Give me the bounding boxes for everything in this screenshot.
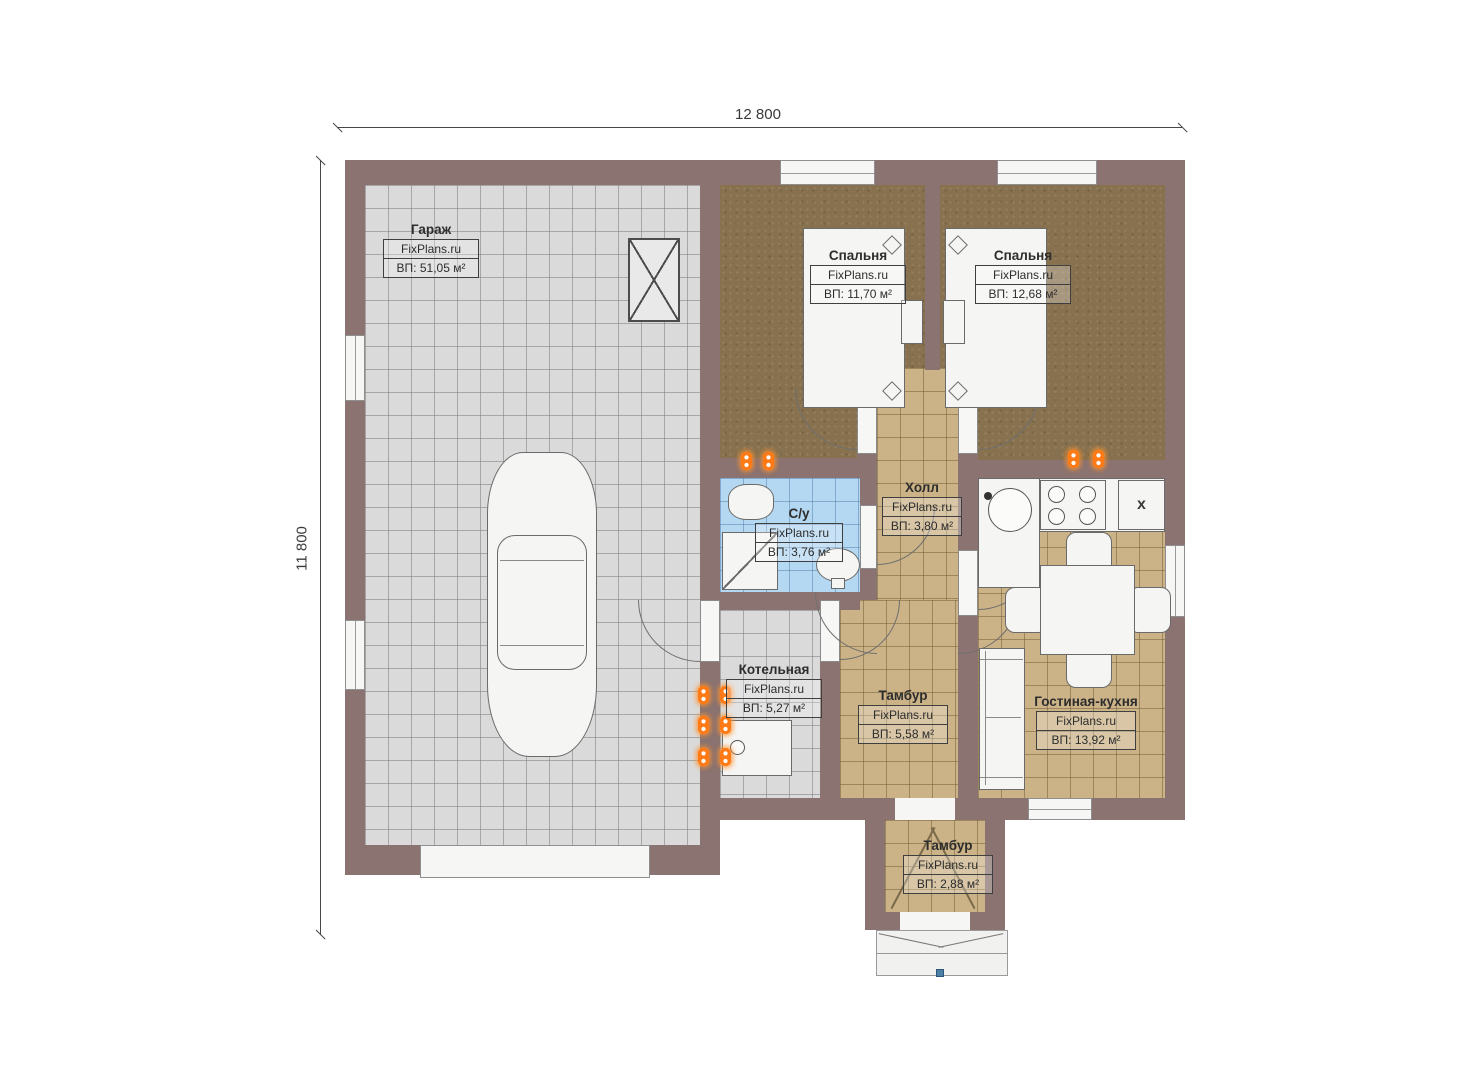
stove-symbol [1040, 480, 1106, 530]
chimney-shaft-symbol [628, 238, 680, 322]
outlet-icon [1068, 450, 1079, 468]
outlet-icon [763, 452, 774, 470]
watermark: FixPlans.ru [1037, 712, 1135, 730]
room-name: Гостиная-кухня [1028, 694, 1144, 709]
tambur-door-opening [895, 798, 955, 820]
entrance-door-opening [900, 912, 970, 930]
stove-burner [1048, 508, 1065, 525]
nightstand [943, 300, 965, 344]
dimension-line-horizontal [337, 127, 1182, 128]
window-bedroom2 [997, 160, 1097, 185]
room-name: Котельная [726, 662, 822, 677]
room-area: ВП: 3,76 м² [756, 542, 842, 561]
window-garage-left-2 [345, 620, 365, 690]
outlet-icon [741, 452, 752, 470]
window-kitchen-bottom [1028, 798, 1092, 820]
fridge-symbol: x [1118, 480, 1165, 530]
room-label-living-kitchen: Гостиная-кухня FixPlans.ru ВП: 13,92 м² [1028, 694, 1144, 750]
sofa-symbol [979, 648, 1025, 790]
toilet-tank [831, 578, 845, 589]
window-glass-line [1029, 809, 1091, 810]
room-area: ВП: 11,70 м² [811, 284, 905, 303]
window-glass-line [781, 173, 874, 174]
watermark: FixPlans.ru [384, 240, 478, 258]
room-area: ВП: 5,58 м² [859, 724, 947, 743]
sofa-armrest [980, 659, 1023, 660]
stove-burner [1079, 486, 1096, 503]
chair-symbol [1066, 650, 1112, 688]
garage-door-opening [420, 845, 650, 878]
outlet-icon [1093, 450, 1104, 468]
room-label-bathroom: С/у FixPlans.ru ВП: 3,76 м² [755, 506, 843, 562]
room-label-garage: Гараж FixPlans.ru ВП: 51,05 м² [383, 222, 479, 278]
stove-burner [1079, 508, 1096, 525]
kitchen-faucet [984, 492, 992, 500]
sofa-seat-divider [985, 717, 1021, 718]
room-name: Холл [882, 480, 962, 495]
room-name: Спальня [975, 248, 1071, 263]
kitchen-sink-symbol [988, 488, 1032, 532]
room-label-tambur1: Тамбур FixPlans.ru ВП: 5,58 м² [858, 688, 948, 744]
outlet-icon [698, 686, 709, 704]
room-name: Тамбур [903, 838, 993, 853]
sofa-armrest [980, 777, 1023, 778]
floor-plan: x Гараж FixPlans.ru ВП: 51,05 м² Спальня [0, 0, 1474, 1080]
dimension-width-value: 12 800 [718, 106, 798, 123]
window-glass-line [998, 173, 1096, 174]
porch-marker [936, 969, 944, 977]
boiler-dial [730, 740, 745, 755]
watermark: FixPlans.ru [756, 524, 842, 542]
nightstand [901, 300, 923, 344]
room-area: ВП: 2,88 м² [904, 874, 992, 893]
car-cabin [497, 535, 587, 670]
room-label-bedroom1: Спальня FixPlans.ru ВП: 11,70 м² [810, 248, 906, 304]
room-name: Тамбур [858, 688, 948, 703]
window-glass-line [355, 336, 356, 400]
chair-symbol [1133, 587, 1171, 633]
dining-table-symbol [1040, 565, 1135, 655]
car-windshield-line [500, 560, 584, 561]
room-name: Гараж [383, 222, 479, 237]
watermark: FixPlans.ru [811, 266, 905, 284]
watermark: FixPlans.ru [976, 266, 1070, 284]
room-area: ВП: 12,68 м² [976, 284, 1070, 303]
door-bathroom [860, 505, 877, 569]
chair-symbol [1005, 587, 1043, 633]
dimension-line-vertical [320, 160, 321, 935]
room-name: С/у [755, 506, 843, 521]
door-kitchen [958, 550, 978, 616]
room-area: ВП: 13,92 м² [1037, 730, 1135, 749]
car-rearwindow-line [500, 645, 584, 646]
room-area: ВП: 5,27 м² [727, 698, 821, 717]
window-garage-left-1 [345, 335, 365, 401]
window-glass-line [1175, 546, 1176, 616]
window-glass-line [355, 621, 356, 689]
wall-between-bedrooms [925, 185, 940, 370]
outlet-icon [720, 748, 731, 766]
dimension-height-value: 11 800 [294, 509, 311, 589]
watermark: FixPlans.ru [859, 706, 947, 724]
room-label-hall: Холл FixPlans.ru ВП: 3,80 м² [882, 480, 962, 536]
watermark: FixPlans.ru [727, 680, 821, 698]
watermark: FixPlans.ru [883, 498, 961, 516]
room-label-bedroom2: Спальня FixPlans.ru ВП: 12,68 м² [975, 248, 1071, 304]
fridge-label: x [1137, 496, 1146, 514]
room-label-tambur2: Тамбур FixPlans.ru ВП: 2,88 м² [903, 838, 993, 894]
room-area: ВП: 51,05 м² [384, 258, 478, 277]
door-garage-boiler [700, 600, 720, 662]
outlet-icon [698, 716, 709, 734]
room-name: Спальня [810, 248, 906, 263]
watermark: FixPlans.ru [904, 856, 992, 874]
outlet-icon [698, 748, 709, 766]
stove-burner [1048, 486, 1065, 503]
porch-line-mid [876, 953, 1008, 954]
room-label-boiler: Котельная FixPlans.ru ВП: 5,27 м² [726, 662, 822, 718]
room-area: ВП: 3,80 м² [883, 516, 961, 535]
outlet-icon [720, 716, 731, 734]
window-bedroom1 [780, 160, 875, 185]
